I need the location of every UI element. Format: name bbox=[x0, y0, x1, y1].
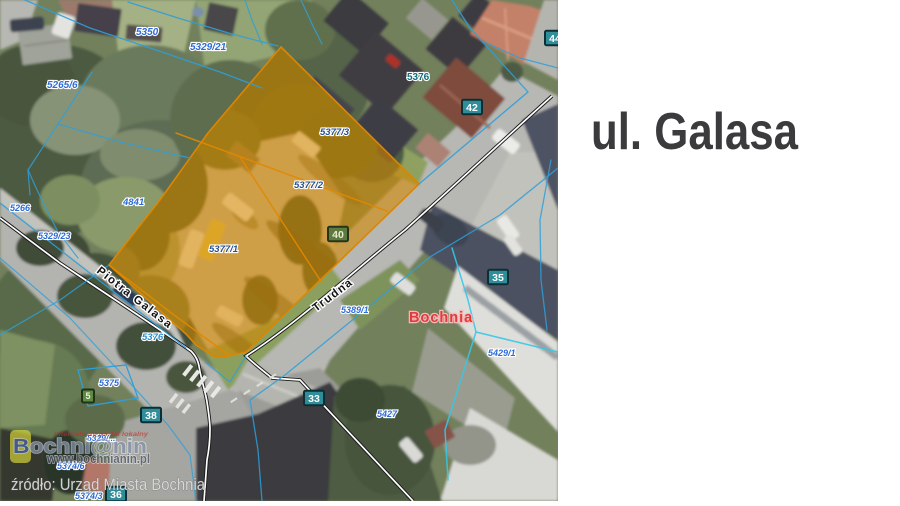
svg-text:5377/1: 5377/1 bbox=[209, 244, 238, 255]
svg-text:5375: 5375 bbox=[99, 378, 120, 388]
svg-text:5377/3: 5377/3 bbox=[320, 127, 350, 138]
svg-text:5427: 5427 bbox=[377, 409, 398, 419]
svg-text:5: 5 bbox=[85, 391, 90, 401]
svg-text:40: 40 bbox=[332, 229, 344, 241]
svg-text:Internetowy portal lokalny: Internetowy portal lokalny bbox=[54, 431, 148, 438]
svg-text:5377/2: 5377/2 bbox=[294, 180, 324, 191]
svg-text:www.bochnianin.pl: www.bochnianin.pl bbox=[46, 452, 150, 466]
svg-text:5376: 5376 bbox=[407, 72, 430, 83]
svg-text:5350: 5350 bbox=[136, 27, 159, 38]
svg-text:5329/23: 5329/23 bbox=[38, 231, 71, 241]
svg-text:4841: 4841 bbox=[122, 197, 144, 208]
svg-text:33: 33 bbox=[308, 393, 320, 405]
svg-text:35: 35 bbox=[492, 272, 504, 284]
svg-text:42: 42 bbox=[466, 102, 478, 114]
svg-text:5265/6: 5265/6 bbox=[47, 80, 78, 91]
svg-text:ul. Galasa: ul. Galasa bbox=[591, 103, 799, 161]
svg-text:5389/1: 5389/1 bbox=[341, 305, 369, 315]
svg-text:38: 38 bbox=[145, 410, 157, 422]
svg-text:źródło: Urząd Miasta Bochnia: źródło: Urząd Miasta Bochnia bbox=[11, 476, 206, 494]
svg-text:5266: 5266 bbox=[10, 203, 31, 213]
svg-text:5329/21: 5329/21 bbox=[190, 42, 227, 53]
svg-text:5429/1: 5429/1 bbox=[488, 348, 516, 358]
svg-text:Bochnia: Bochnia bbox=[409, 310, 473, 326]
svg-text:5376: 5376 bbox=[142, 332, 164, 343]
